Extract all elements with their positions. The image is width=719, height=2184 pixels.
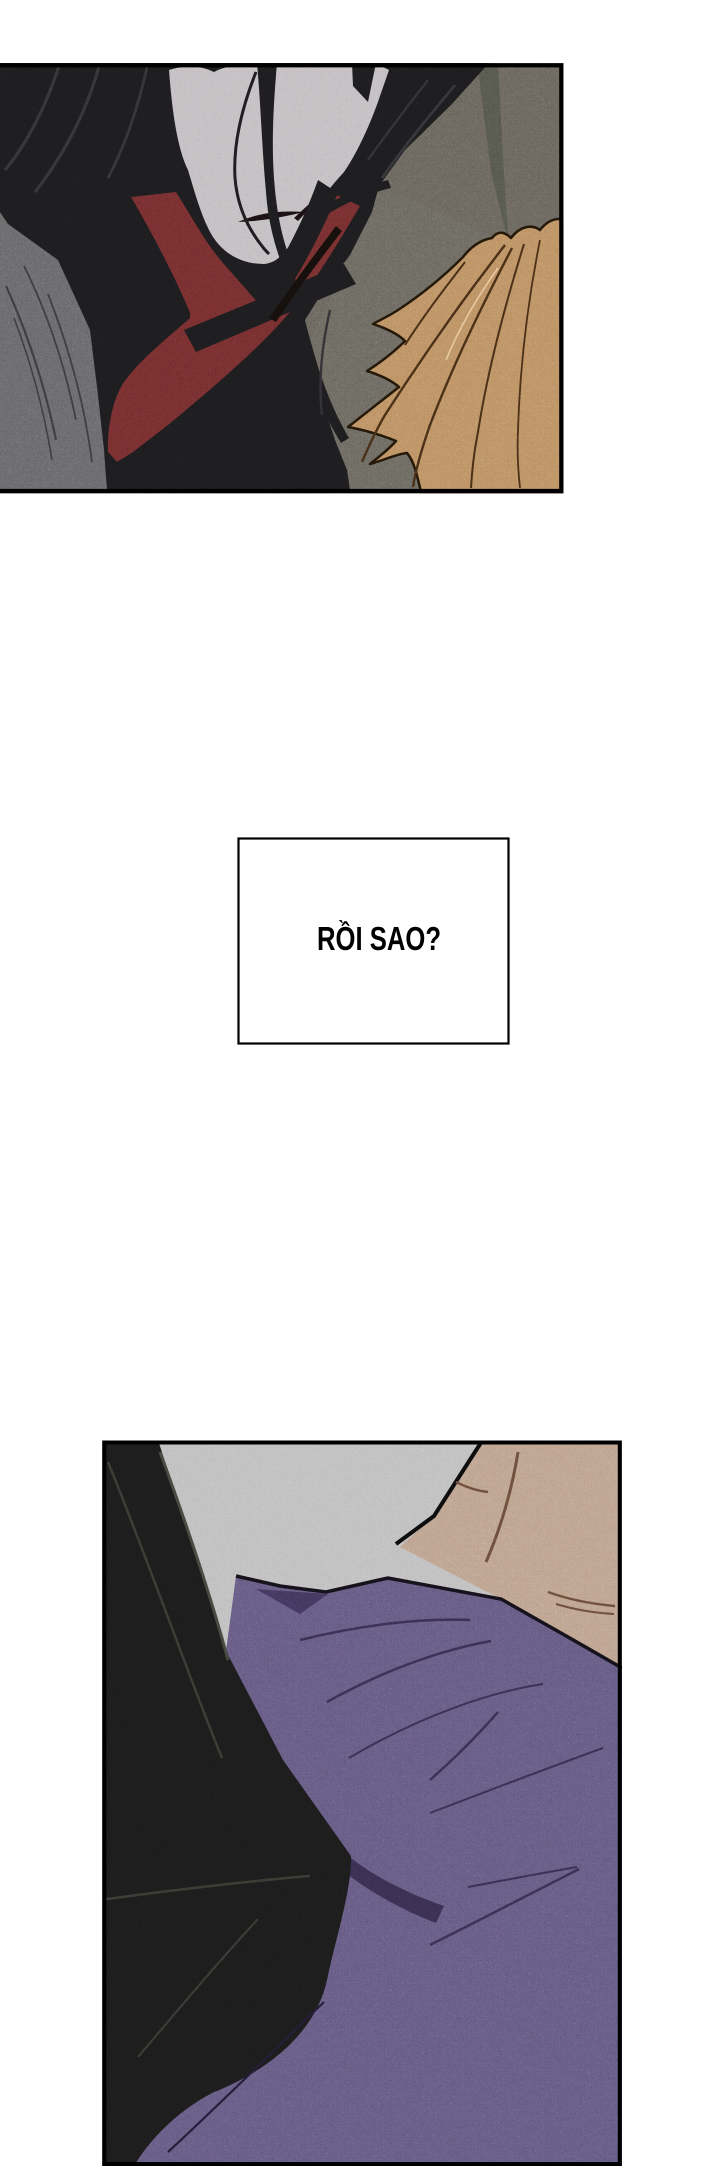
svg-text:RỒI SAO?: RỒI SAO?: [317, 920, 441, 957]
